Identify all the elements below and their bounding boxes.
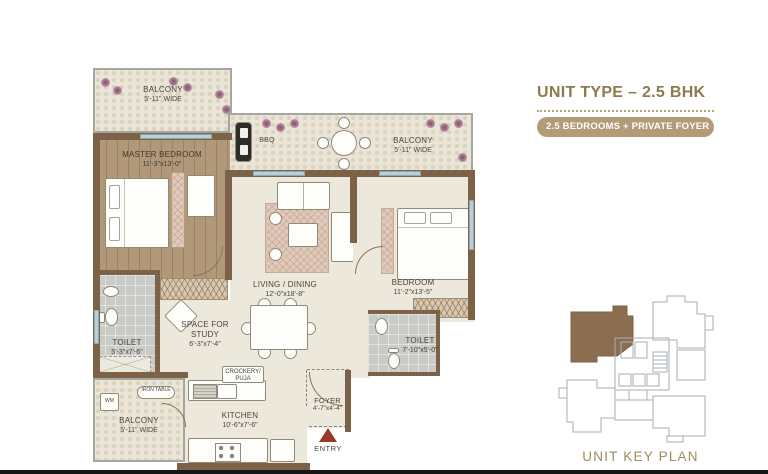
wall	[93, 372, 188, 378]
hob-burners	[215, 443, 241, 462]
room-name: BALCONY	[368, 136, 458, 146]
iron-table-text: IRON TABLE	[138, 388, 174, 394]
bedroom-label: BEDROOM 11'-2"x13'-5"	[373, 278, 453, 297]
dining-table	[250, 305, 308, 350]
flower-pot-icon	[454, 119, 463, 128]
washbasin	[375, 318, 388, 335]
bbq-text: BBQ	[254, 137, 280, 146]
room-name: SPACE FOR STUDY	[181, 320, 229, 340]
title-separator	[537, 110, 714, 112]
room-name: FOYER	[305, 396, 350, 405]
side-table	[269, 248, 282, 261]
room-dim: 10'-6"x7'-6"	[200, 421, 280, 430]
entry-label: ENTRY	[311, 444, 345, 453]
balcony-tl-label: BALCONY 5'-11" WIDE	[103, 85, 223, 104]
flower-pot-icon	[290, 119, 299, 128]
washing-machine: WM	[100, 393, 119, 411]
room-dim: 7'-10"x5'-0"	[398, 346, 442, 355]
floor-plan: BALCONY 5'-11" WIDE BBQ BALCONY	[85, 60, 490, 474]
patio-chair	[338, 117, 350, 129]
window	[94, 310, 99, 344]
room-dim: 11'-2"x13'-5"	[373, 288, 453, 297]
side-table	[269, 212, 282, 225]
master-bed	[105, 178, 169, 248]
window	[379, 171, 421, 176]
shower-area	[99, 356, 151, 373]
flower-pot-icon	[440, 123, 449, 132]
window	[253, 171, 305, 176]
kitchen-sink	[217, 384, 237, 399]
bottom-rule	[0, 470, 768, 474]
room-dim: 12'-0"x18'-8"	[230, 290, 340, 299]
toilet-left-label: TOILET 5'-3"x7'-6"	[97, 338, 157, 357]
wm-text: WM	[101, 399, 118, 405]
floorplan-brochure-page: BALCONY 5'-11" WIDE BBQ BALCONY	[0, 0, 768, 474]
wall	[95, 270, 160, 275]
room-name: LIVING / DINING	[230, 280, 340, 290]
entry-text: ENTRY	[311, 444, 345, 453]
window	[140, 134, 212, 139]
wc-toilet	[105, 308, 118, 326]
wc-toilet	[388, 353, 400, 369]
bbq-detail	[240, 145, 248, 155]
toilet-right-label: TOILET 7'-10"x5'-0"	[398, 336, 442, 355]
master-wardrobe	[187, 175, 215, 217]
iron-line2: TABLE	[155, 387, 170, 393]
flower-pot-icon	[458, 153, 467, 162]
room-dim: 4'-7"x4'-4"	[305, 405, 350, 413]
room-dim: 5'-11" WIDE	[99, 426, 179, 435]
kitchen-label: KITCHEN 10'-6"x7'-6"	[200, 411, 280, 430]
living-dining-label: LIVING / DINING 12'-0"x18'-8"	[230, 280, 340, 299]
sofa	[277, 182, 330, 210]
bed-fold-line	[398, 227, 468, 228]
wall	[155, 275, 160, 375]
flower-pot-icon	[276, 123, 285, 132]
wall	[225, 170, 232, 280]
patio-table	[331, 130, 357, 156]
wall	[345, 370, 351, 432]
washbasin	[103, 286, 119, 297]
room-dim: 6'-3"x7'-4"	[181, 340, 229, 349]
pillow	[404, 212, 426, 224]
bbq-grill	[235, 122, 252, 162]
kitchen-counter-bottom	[188, 438, 268, 463]
sofa-cushion-line	[303, 183, 304, 209]
crockery-line1: CROCKERY/	[223, 369, 263, 376]
bbq-label: BBQ	[254, 137, 280, 146]
kitchen-counter-top	[188, 380, 266, 401]
room-dim: 5'-11" WIDE	[368, 146, 458, 155]
study-label: SPACE FOR STUDY 6'-3"x7'-4"	[181, 320, 229, 349]
entry-arrow-icon	[319, 428, 337, 442]
coffee-table	[288, 223, 318, 247]
drainboard	[193, 384, 217, 399]
iron-table: IRON TABLE	[137, 386, 175, 399]
room-name: TOILET	[398, 336, 442, 346]
room-dim: 11'-3"x13'-0"	[102, 160, 222, 169]
foyer-label: FOYER 4'-7"x4'-4"	[305, 396, 350, 414]
pillow	[430, 212, 452, 224]
page-title: UNIT TYPE – 2.5 BHK	[537, 84, 705, 102]
wardrobe-hangers	[160, 278, 228, 300]
foyer-dash-top	[307, 369, 349, 370]
key-plan-label: UNIT KEY PLAN	[538, 449, 743, 464]
room-dim: 5'-11" WIDE	[103, 95, 223, 104]
pillow	[109, 217, 120, 241]
foyer-dash-bottom	[309, 426, 347, 427]
crockery-line2: PUJA	[223, 376, 263, 383]
room-name: KITCHEN	[200, 411, 280, 421]
bbq-detail	[240, 128, 248, 138]
bed	[397, 208, 469, 280]
balcony-tr-label: BALCONY 5'-11" WIDE	[368, 136, 458, 155]
pillow	[109, 185, 120, 209]
highlighted-unit	[571, 306, 633, 362]
room-name: TOILET	[97, 338, 157, 348]
wall	[350, 175, 357, 243]
room-name: BEDROOM	[373, 278, 453, 288]
master-bedroom-label: MASTER BEDROOM 11'-3"x13'-0"	[102, 150, 222, 169]
flower-pot-icon	[426, 119, 435, 128]
bedside-runner	[171, 172, 185, 248]
fridge	[270, 439, 295, 462]
bed-fold-line	[124, 179, 125, 247]
unit-key-plan	[557, 292, 757, 444]
patio-chair	[317, 137, 329, 149]
unit-badge: 2.5 BEDROOMS + PRIVATE FOYER	[537, 117, 714, 137]
iron-line1: IRON	[141, 387, 154, 393]
patio-chair	[338, 158, 350, 170]
flower-pot-icon	[262, 119, 271, 128]
room-name: BALCONY	[103, 85, 223, 95]
crockery-unit: CROCKERY/ PUJA	[222, 366, 264, 383]
room-name: MASTER BEDROOM	[102, 150, 222, 160]
crockery-text: CROCKERY/ PUJA	[223, 369, 263, 383]
window	[469, 200, 474, 250]
